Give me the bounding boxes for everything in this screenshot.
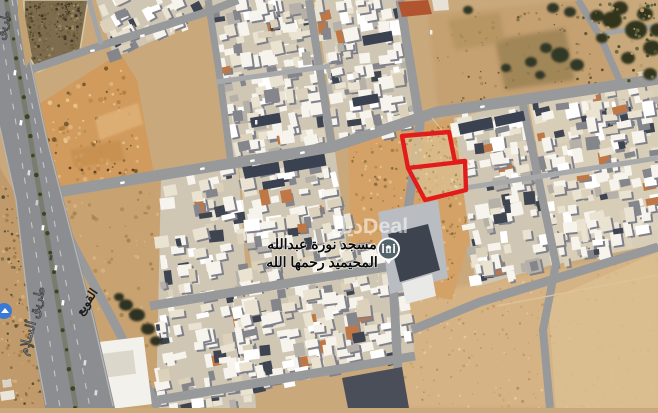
svg-text:مسجد نورة عبدالله: مسجد نورة عبدالله xyxy=(267,236,377,253)
svg-text:المحيميد رحمها الله: المحيميد رحمها الله xyxy=(266,254,377,271)
svg-text:ديلDeal: ديلDeal xyxy=(331,214,408,238)
